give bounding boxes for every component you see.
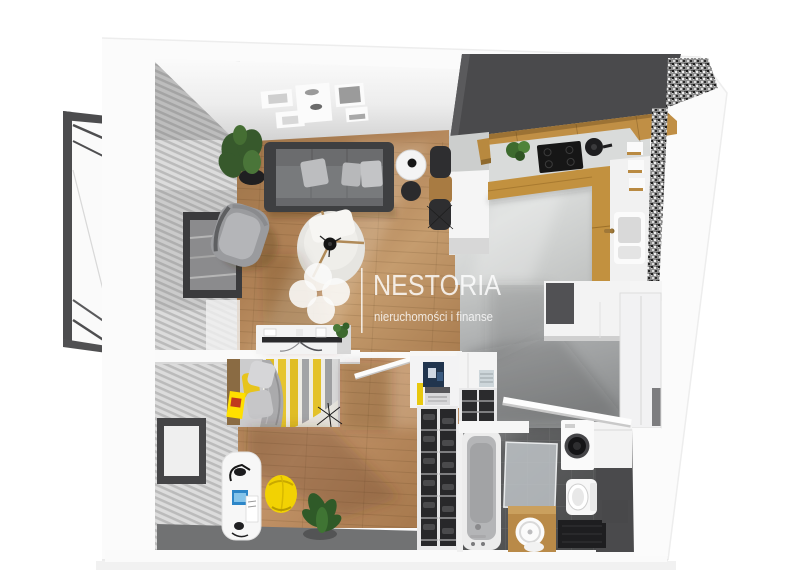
svg-text:NESTORIA: NESTORIA: [373, 270, 502, 302]
svg-text:nieruchomości i finanse: nieruchomości i finanse: [374, 310, 493, 324]
